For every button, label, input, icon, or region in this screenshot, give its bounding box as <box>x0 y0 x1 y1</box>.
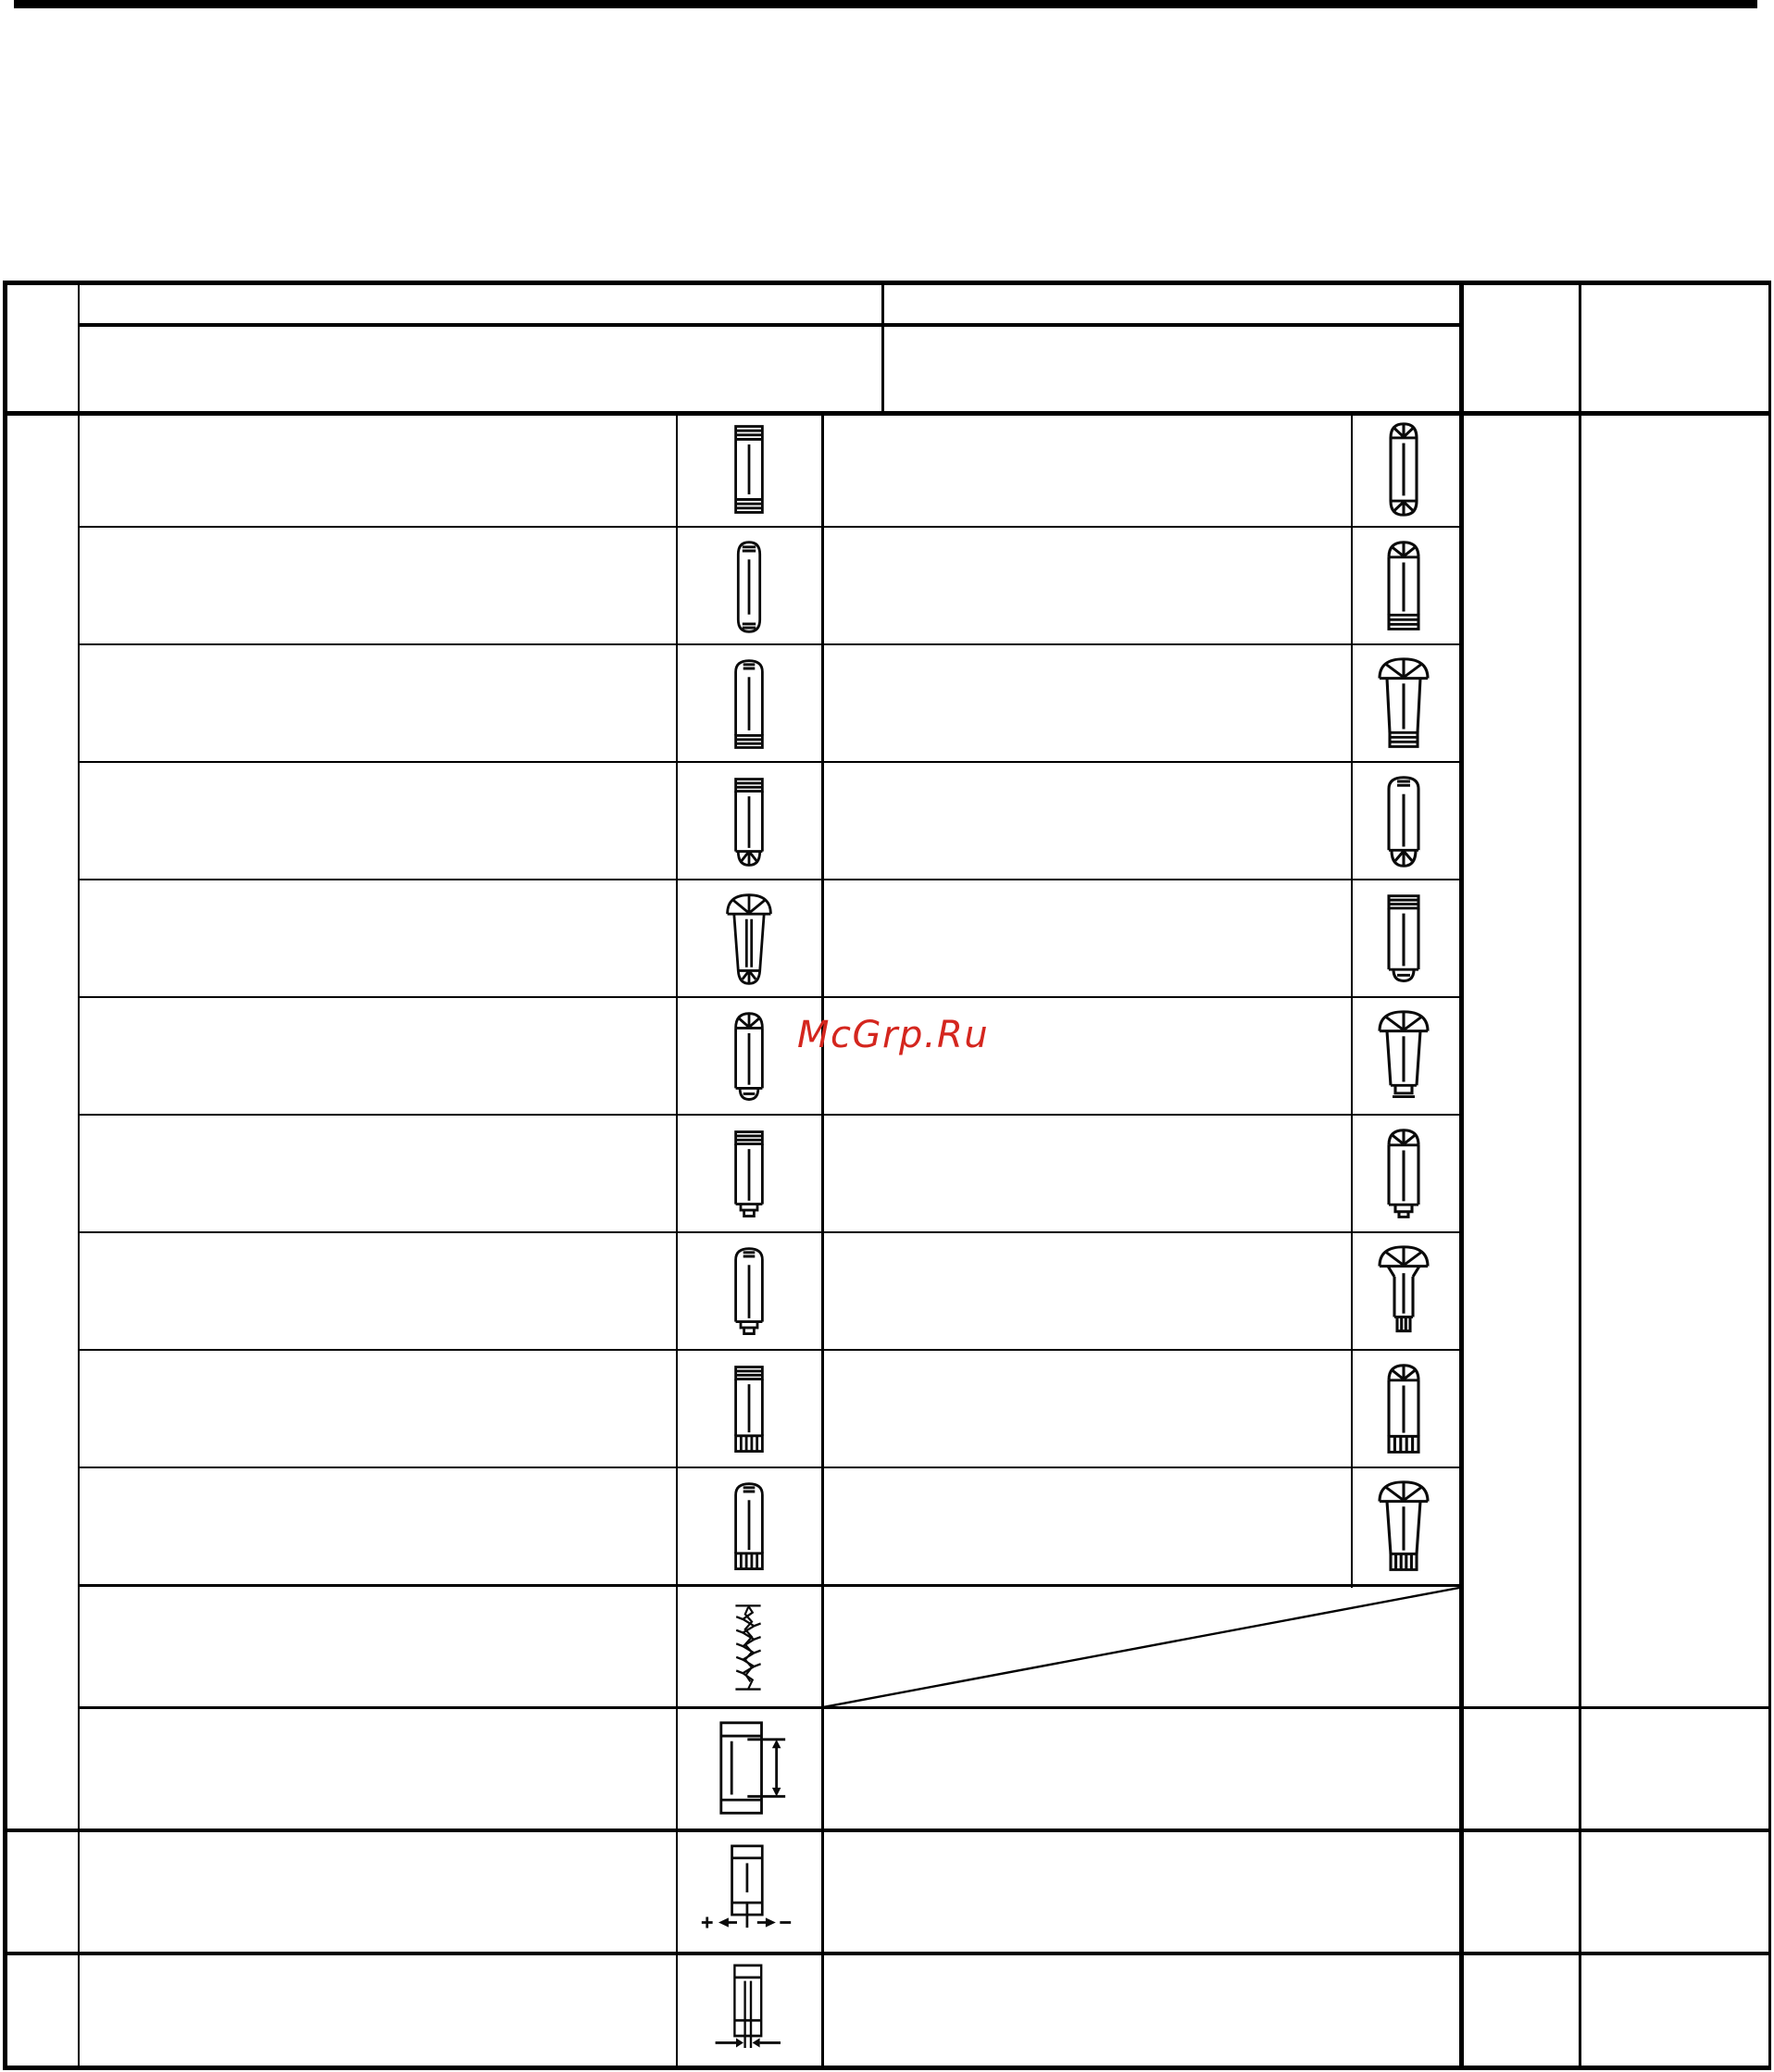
col-d-e-line <box>1579 281 1581 2070</box>
needle-striped-top-fan-ball-bottom-icon <box>724 774 774 870</box>
row-divider-13 <box>3 1952 1771 1955</box>
header-divider <box>78 323 1463 327</box>
row-divider-3 <box>78 761 1460 763</box>
right-icon-cell-left-line <box>1351 411 1353 1588</box>
col-narrow-right-line <box>78 281 80 2070</box>
needle-rounded-cap-top-and-bottom-icon <box>724 539 774 635</box>
needle-wide-fan-top-striped-bottom-icon <box>1376 655 1431 754</box>
needle-flat-striped-top-and-bottom-icon <box>724 421 774 518</box>
bobbin-inward-arrows-icon <box>706 1964 788 2060</box>
col-heavy-line <box>1459 281 1464 2070</box>
header-mid-line <box>881 281 884 416</box>
needle-fan-dome-top-comb-bottom-icon <box>1376 1361 1431 1459</box>
row-divider-9 <box>78 1467 1460 1468</box>
row-divider-8 <box>78 1349 1460 1351</box>
needle-striped-top-step-foot-bottom-icon <box>724 1127 774 1223</box>
twisted-wire-spring-icon <box>726 1600 770 1694</box>
row-divider-6 <box>78 1114 1460 1116</box>
row-divider-4 <box>78 879 1460 880</box>
needle-dome-top-striped-bottom-icon <box>724 656 774 753</box>
needle-dome-top-fan-ball-bottom-icon <box>1376 773 1431 871</box>
left-icon-cell-right-line <box>821 411 824 2070</box>
row-divider-1 <box>78 526 1460 528</box>
needle-wide-fan-top-comb-bottom-icon <box>1376 1479 1431 1577</box>
table-border-bottom <box>3 2066 1771 2070</box>
needle-wide-fan-top-pedestal-bottom-icon <box>1376 1008 1431 1106</box>
row-divider-2 <box>78 643 1460 645</box>
bobbin-lateral-adjustment-plus-minus-icon <box>700 1844 793 1941</box>
needle-wide-fan-top-ribbed-foot-bottom-icon <box>1376 1243 1431 1342</box>
needle-dome-top-comb-bottom-icon <box>724 1479 774 1576</box>
table-border-left <box>3 281 7 2070</box>
row-divider-5 <box>78 996 1460 998</box>
needle-fan-dome-top-flange-dome-bottom-icon <box>724 1009 774 1105</box>
document-page: McGrp.Ru <box>0 0 1774 2072</box>
crossed-out-diagonal-line <box>822 1586 1460 1708</box>
needle-wide-fan-top-fan-ball-bottom-icon <box>724 892 774 988</box>
row-divider-12 <box>3 1829 1771 1832</box>
needle-fan-ball-top-and-bottom-icon <box>1376 420 1431 518</box>
table-border-top <box>3 281 1771 285</box>
left-icon-cell-left-line <box>676 411 678 2070</box>
needle-striped-top-comb-bottom-icon <box>724 1362 774 1458</box>
watermark: McGrp.Ru <box>797 1015 989 1055</box>
needle-fan-dome-top-step-foot-bottom-icon <box>1376 1126 1431 1224</box>
row-divider-7 <box>78 1231 1460 1233</box>
table-border-right <box>1768 281 1771 2070</box>
needle-striped-top-flange-dome-bottom-icon <box>1376 891 1431 989</box>
top-black-bar <box>14 0 1757 8</box>
needle-dome-top-step-foot-bottom-icon <box>724 1244 774 1341</box>
bobbin-height-dimension-icon <box>718 1720 788 1818</box>
header-bottom-line <box>3 411 1771 416</box>
needle-fan-dome-top-striped-bottom-icon <box>1376 538 1431 636</box>
